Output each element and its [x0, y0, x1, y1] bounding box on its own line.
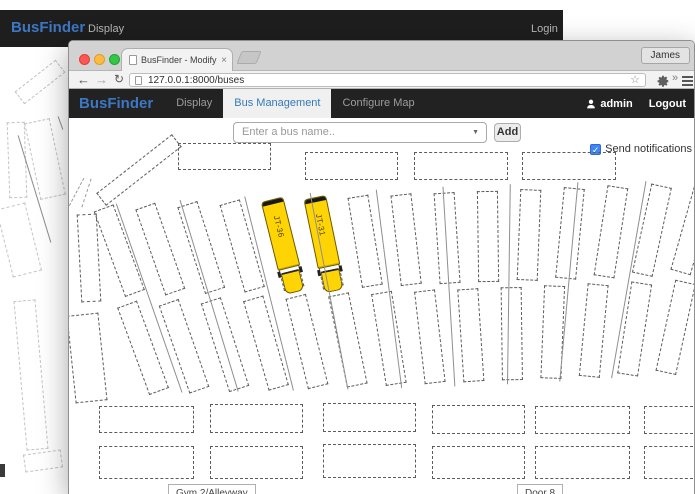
new-tab-button[interactable] [236, 51, 261, 64]
tab-title: BusFinder - Modify Buses [141, 55, 218, 65]
parking-spot [501, 287, 523, 380]
forward-icon[interactable]: → [95, 71, 108, 89]
parking-spot [655, 280, 694, 375]
parking-spot [670, 182, 694, 275]
url-text: 127.0.0.1:8000/buses [148, 74, 244, 87]
browser-tab[interactable]: BusFinder - Modify Buses × [121, 48, 233, 71]
parking-spot [579, 283, 609, 378]
person-icon [586, 99, 596, 109]
map-ramp [96, 134, 181, 206]
bookmark-star-icon[interactable]: ☆ [630, 74, 640, 87]
window-close-button[interactable] [79, 54, 90, 65]
bus-marker[interactable]: JT-31 [303, 195, 345, 294]
bus-roof-stripe [305, 196, 326, 204]
bus-body: JT-36 [261, 196, 301, 270]
background-map-shape [23, 449, 63, 472]
map-zone [644, 446, 694, 479]
map-zone [323, 403, 416, 432]
background-map-shape [0, 202, 42, 277]
map-zone [522, 152, 616, 180]
parking-spot [285, 294, 328, 389]
map-area: Enter a bus name.. ▼ Add ✓ Send notifica… [69, 118, 694, 494]
map-zone [305, 152, 398, 180]
bus-select-placeholder: Enter a bus name.. [242, 123, 335, 142]
menu-icon[interactable] [682, 76, 693, 78]
door-label-gym: Gym 2/Alleyway [168, 484, 256, 494]
window-minimize-button[interactable] [94, 54, 105, 65]
tab-favicon [129, 55, 137, 65]
map-zone [323, 444, 416, 478]
user-menu[interactable]: admin [586, 98, 632, 110]
map-zone [210, 446, 303, 479]
map-zone [535, 446, 630, 479]
bus-cab [281, 269, 305, 295]
map-zone [535, 406, 630, 434]
parking-lot: JT-36JT-31 [97, 181, 694, 399]
bus-label: JT-36 [272, 215, 286, 239]
app-brand[interactable]: BusFinder [79, 89, 153, 118]
nav-item-display[interactable]: Display [165, 89, 223, 118]
map-zone [432, 405, 525, 434]
parking-spot [390, 193, 421, 286]
chevron-down-icon: ▼ [472, 123, 479, 142]
parking-spot [94, 204, 145, 297]
map-line [81, 179, 91, 208]
app-page: BusFinder Display Bus Management Configu… [69, 89, 694, 494]
parking-spot [371, 291, 407, 386]
logout-link[interactable]: Logout [649, 98, 686, 110]
notifications-label: Send notifications [605, 143, 692, 155]
browser-profile-button[interactable]: James [641, 47, 690, 64]
parking-spot [201, 297, 249, 392]
parking-spot [517, 189, 542, 281]
bus-roof-stripe [262, 198, 283, 207]
parking-spot [617, 281, 652, 376]
map-zone [644, 406, 694, 434]
parking-spot [632, 184, 672, 277]
tab-close-icon[interactable]: × [221, 55, 227, 66]
add-bus-button[interactable]: Add [494, 123, 521, 142]
door-label-door8: Door 8 [517, 484, 563, 494]
parking-spot [414, 289, 446, 384]
address-bar[interactable]: 127.0.0.1:8000/buses ☆ [129, 73, 646, 87]
nav-item-configure-map[interactable]: Configure Map [331, 89, 425, 118]
background-nav-login[interactable]: Login [531, 23, 558, 35]
background-nav-display[interactable]: Display [88, 23, 124, 35]
browser-toolbar: ← → ↻ 127.0.0.1:8000/buses ☆ » [69, 71, 694, 89]
map-zone [432, 446, 525, 479]
background-map-shape [15, 60, 66, 105]
browser-window: BusFinder - Modify Buses × James ← → ↻ 1… [68, 40, 695, 494]
bus-marker[interactable]: JT-36 [261, 196, 307, 295]
browser-tabstrip: BusFinder - Modify Buses × James [69, 41, 694, 71]
overflow-chevron-icon[interactable]: » [672, 72, 678, 84]
parking-spot [477, 191, 499, 282]
parking-spot: JT-31 [305, 196, 344, 289]
reload-icon[interactable]: ↻ [114, 71, 124, 89]
parking-spot [328, 292, 367, 387]
nav-item-bus-management[interactable]: Bus Management [223, 89, 331, 118]
parking-spot [594, 185, 629, 278]
background-map-shape [24, 118, 66, 200]
map-zone [414, 152, 508, 180]
user-label: admin [600, 98, 632, 110]
map-zone [210, 404, 303, 433]
window-zoom-button[interactable] [109, 54, 120, 65]
background-map-line [58, 116, 64, 129]
background-brand[interactable]: BusFinder [11, 19, 85, 36]
app-navbar: BusFinder Display Bus Management Configu… [69, 89, 694, 118]
page-icon [135, 76, 142, 85]
map-zone [178, 143, 271, 170]
map-zone [99, 406, 194, 433]
parking-spot [220, 199, 265, 292]
background-map-shape [14, 299, 49, 450]
back-icon[interactable]: ← [77, 71, 90, 89]
parking-spot: JT-36 [262, 198, 304, 291]
bus-name-select[interactable]: Enter a bus name.. ▼ [233, 122, 487, 143]
background-map-shape [0, 464, 5, 477]
map-zone [99, 446, 194, 479]
parking-spot [457, 288, 484, 382]
